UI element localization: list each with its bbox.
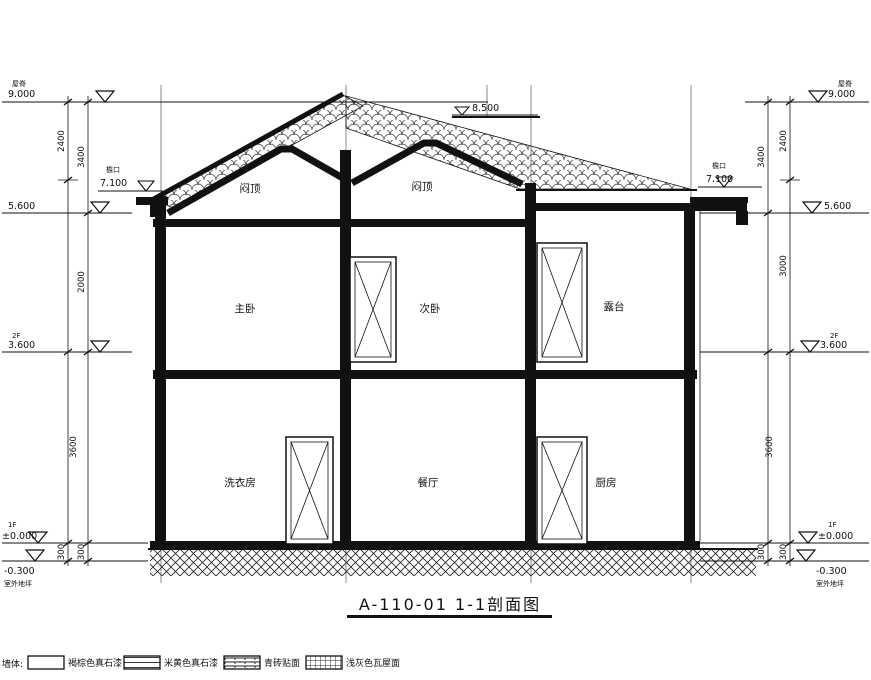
flag-left-ridge: 屋脊 9.000 (2, 79, 488, 102)
flag-left-ridge-label: 屋脊 (12, 79, 26, 88)
flag-right-eave-value: 7.100 (706, 174, 733, 185)
flag-left-attic: 5.600 (2, 201, 132, 213)
flag-right-2f-label: 2F (830, 332, 838, 340)
legend-swatch-brick (224, 656, 260, 669)
flag-left-1f-value: ±0.000 (2, 531, 37, 542)
dimension-chain-right: 3400 2400 3000 3600 300 300 (757, 96, 800, 566)
room-label-master-bedroom: 主卧 (235, 302, 256, 315)
flag-right-1f-label: 1F (828, 521, 836, 529)
secondary-ridge-annotation: 8.500 (452, 103, 538, 115)
roof-tiles-right (346, 96, 690, 189)
flag-right-ridge: 屋脊 9.000 (745, 79, 869, 102)
flag-left-1f-label: 1F (8, 521, 16, 529)
flag-right-eave-label: 檐口 (712, 161, 726, 170)
window-1f-right (537, 437, 587, 544)
openings (286, 243, 587, 544)
flag-right-ridge-value: 9.000 (828, 89, 855, 100)
room-label-dining: 餐厅 (418, 476, 439, 489)
legend-label-2: 米黄色真石漆 (164, 657, 218, 669)
flag-left-eave-label: 檐口 (106, 165, 120, 174)
flag-right-ridge-label: 屋脊 (838, 79, 852, 88)
dim-left-300b: 300 (77, 544, 87, 560)
window-2f-middle (350, 257, 396, 362)
flag-right-1f-value: ±0.000 (818, 531, 853, 542)
slab-2f (153, 370, 697, 379)
legend-label-3: 青砖贴面 (264, 657, 300, 669)
room-label-kitchen: 厨房 (596, 476, 617, 489)
material-legend: 墙体: 褐棕色真石漆 米黄色真石漆 青砖贴面 浅灰色瓦屋面 (2, 656, 400, 670)
elevation-flags-right: 屋脊 9.000 檐口 7.100 5.600 2F 3.600 1F ±0.0… (698, 79, 869, 588)
drawing-title-underline (347, 615, 552, 618)
dimension-chain-left: 3400 2400 2000 3600 300 300 (57, 96, 92, 566)
drawing-sheet: 闷顶 闷顶 主卧 次卧 露台 洗衣房 餐厅 厨房 屋脊 9.000 檐口 7.1… (0, 0, 871, 680)
flag-left-2f-value: 3.600 (8, 340, 35, 351)
legend-swatch-hlines (124, 656, 160, 669)
flag-left-attic-value: 5.600 (8, 201, 35, 212)
legend-swatch-plain (28, 656, 64, 669)
flag-right-ground-value: -0.300 (816, 566, 847, 577)
flag-right-eave: 檐口 7.100 (698, 161, 762, 187)
slab-terrace-canopy (528, 203, 747, 211)
flag-right-ground-label: 室外地坪 (816, 579, 844, 588)
flag-right-attic-value: 5.600 (824, 201, 851, 212)
dim-right-300a: 300 (757, 544, 767, 560)
flag-left-ridge-value: 9.000 (8, 89, 35, 100)
legend-swatch-grid (306, 656, 342, 669)
secondary-ridge-value: 8.500 (472, 103, 499, 114)
legend-label-1: 褐棕色真石漆 (68, 657, 122, 669)
wall-right-exterior (684, 211, 695, 548)
room-label-terrace: 露台 (604, 300, 625, 313)
dim-right-3600: 3600 (765, 436, 775, 458)
door-1f-left (286, 437, 333, 544)
ground-earth-hatch (148, 549, 758, 576)
drawing-title: A-110-01 1-1剖面图 (347, 595, 552, 618)
flag-left-ground-value: -0.300 (4, 566, 35, 577)
flag-left-2f: 2F 3.600 (2, 332, 132, 352)
dim-right-3400: 3400 (757, 146, 767, 168)
slab-attic (153, 219, 535, 227)
flag-left-ground-label: 室外地坪 (4, 579, 32, 588)
canopy-cornice-top (690, 197, 748, 203)
dim-left-300a: 300 (57, 544, 67, 560)
wall-interior-2 (525, 183, 536, 548)
flag-right-2f-value: 3.600 (820, 340, 847, 351)
flag-right-2f: 2F 3.600 (700, 332, 869, 352)
flag-right-1f: 1F ±0.000 (700, 521, 869, 543)
flag-left-outdoor-ground: -0.300 室外地坪 (2, 550, 148, 588)
legend-prefix: 墙体: (2, 658, 23, 670)
flag-left-eave-value: 7.100 (100, 178, 127, 189)
room-label-attic-right: 闷顶 (412, 180, 433, 193)
room-label-attic-left: 闷顶 (240, 182, 261, 195)
dim-right-300b: 300 (779, 544, 789, 560)
dim-left-2000: 2000 (77, 271, 87, 293)
flag-left-1f: 1F ±0.000 (2, 521, 148, 543)
roof (136, 94, 697, 217)
slab-1f (150, 541, 700, 549)
legend-label-4: 浅灰色瓦屋面 (346, 657, 400, 669)
room-label-second-bedroom: 次卧 (420, 302, 441, 315)
drawing-title-text: A-110-01 1-1剖面图 (359, 595, 541, 614)
dim-right-3000: 3000 (779, 255, 789, 277)
room-label-laundry: 洗衣房 (224, 476, 256, 489)
floor-slabs (150, 197, 748, 549)
flag-left-2f-label: 2F (12, 332, 20, 340)
dim-left-3600: 3600 (69, 436, 79, 458)
flag-left-eave: 檐口 7.100 (98, 165, 163, 191)
window-2f-terrace (537, 243, 587, 362)
section-drawing-svg: 闷顶 闷顶 主卧 次卧 露台 洗衣房 餐厅 厨房 屋脊 9.000 檐口 7.1… (0, 0, 871, 680)
dim-left-3400: 3400 (77, 146, 87, 168)
dim-left-2400: 2400 (57, 130, 67, 152)
dim-right-2400: 2400 (779, 130, 789, 152)
